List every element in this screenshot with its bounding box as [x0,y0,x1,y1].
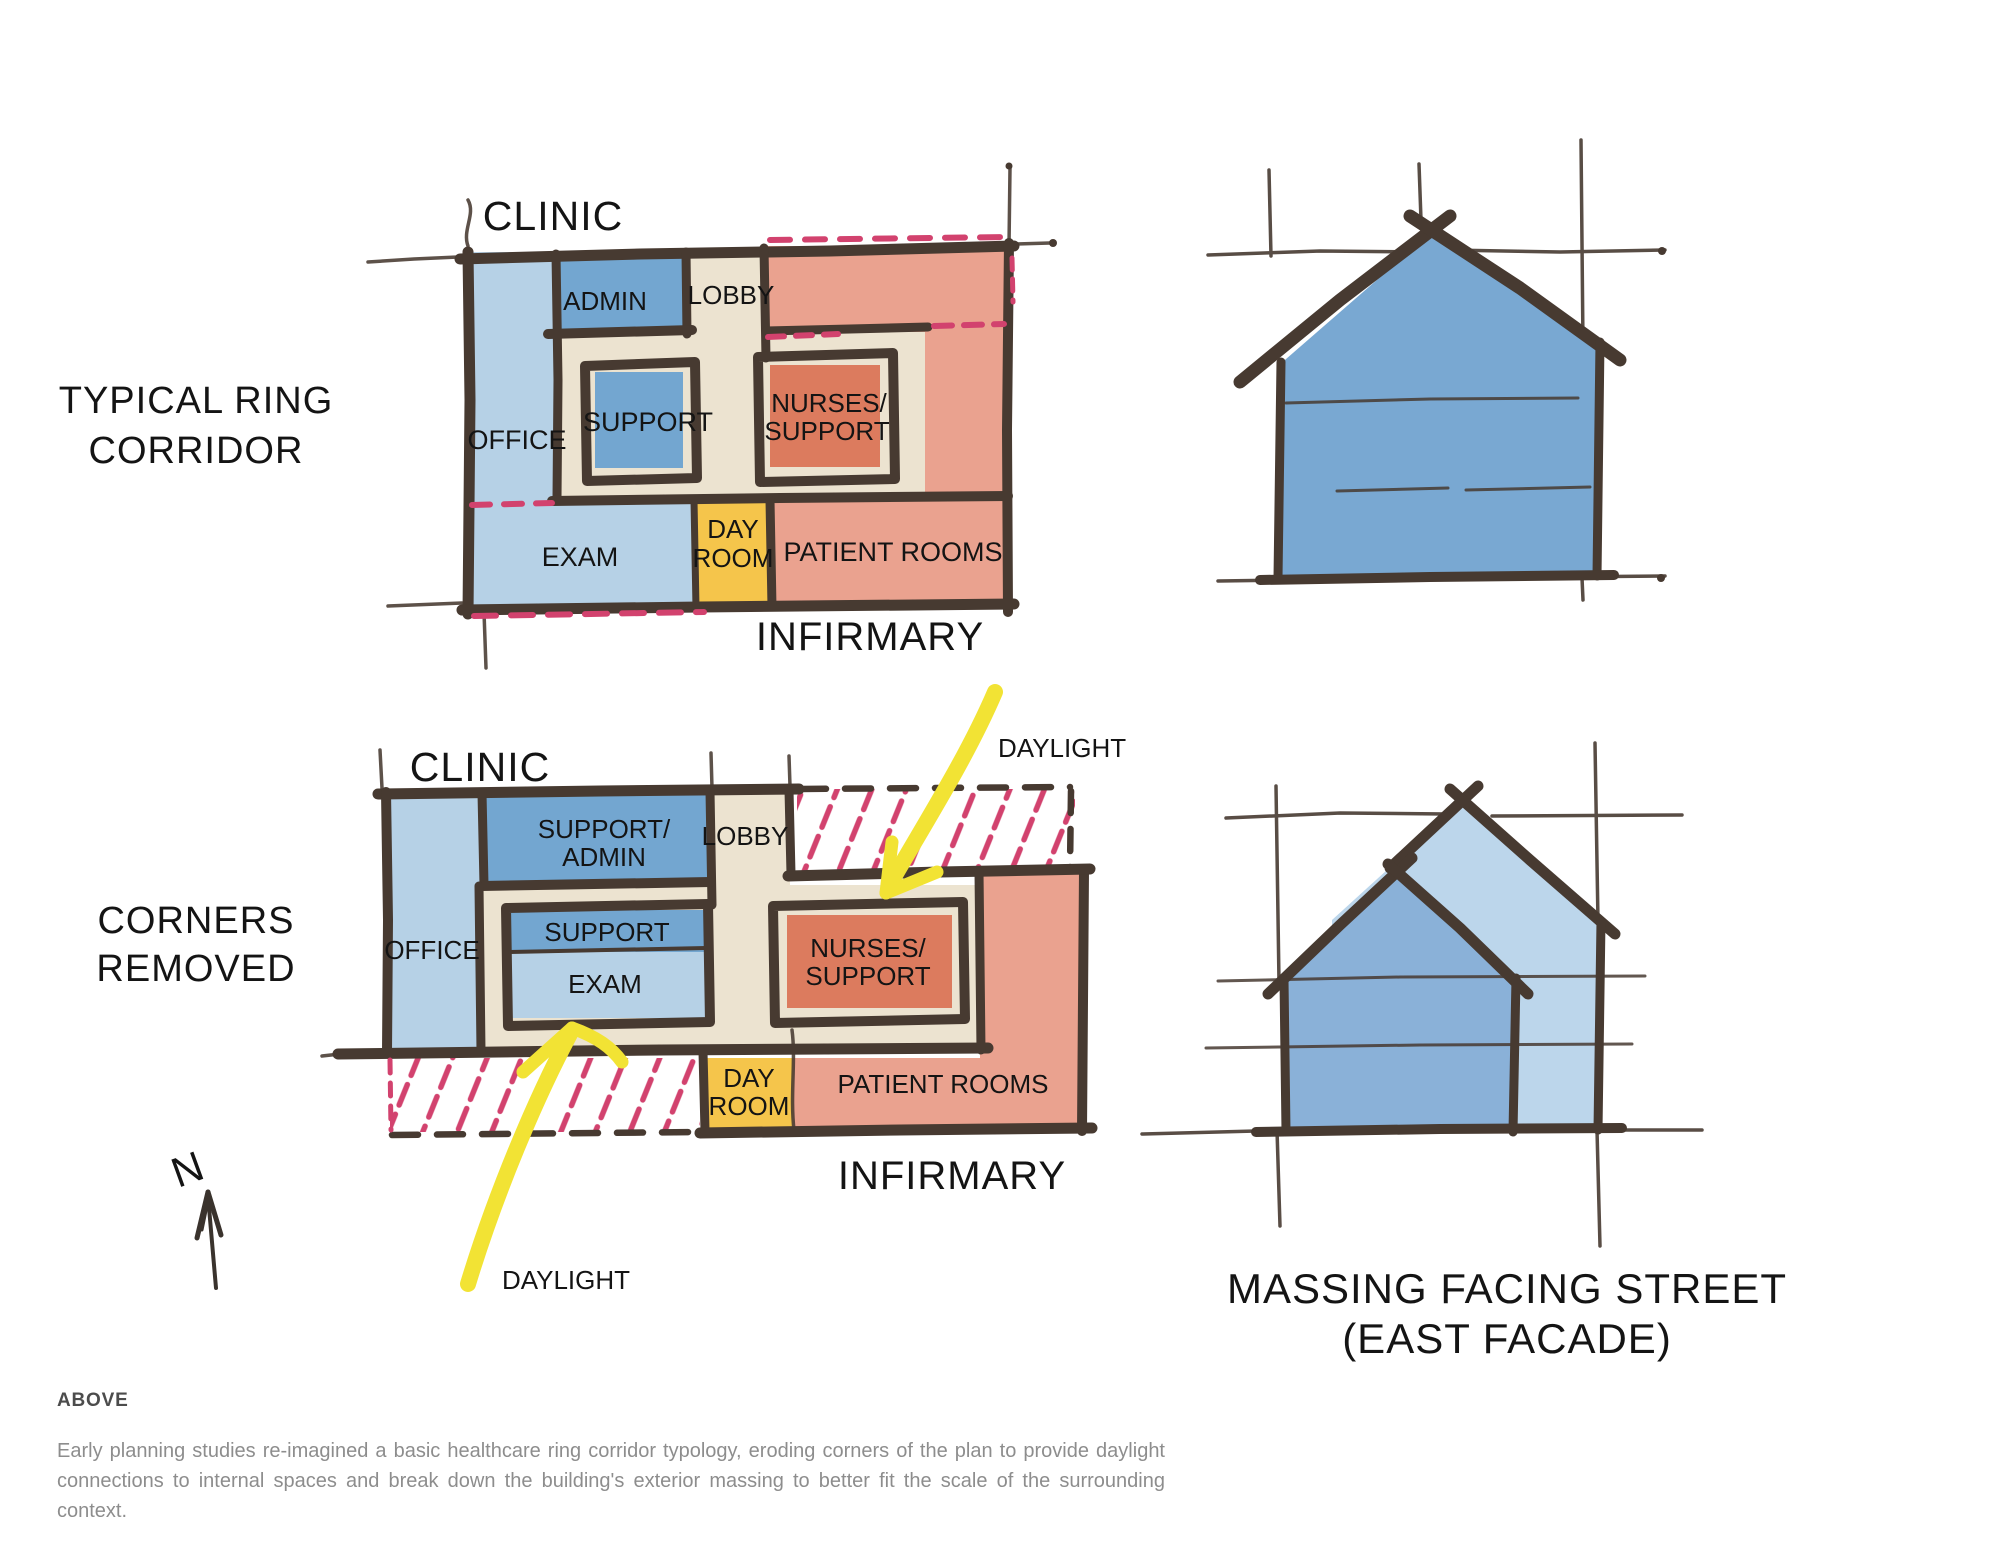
plan1-typical-ring-corridor: CLINIC INFIRMARY ADMIN LOBBY OFFICE SUPP… [368,163,1057,669]
plan1-clinic-label: CLINIC [483,193,623,239]
caption-block: ABOVE Early planning studies re-imagined… [57,1390,1165,1526]
plan2-section-title-line1: CORNERS [97,900,294,942]
plan2-room-office: OFFICE [384,935,479,965]
plan1-section-title-line2: CORRIDOR [89,430,304,472]
plan1-room-support: SUPPORT [583,407,713,437]
north-arrow-label: N [165,1142,210,1197]
plan2-room-support-admin-line2: ADMIN [562,842,646,872]
massing1-volume [1278,232,1600,576]
plan2-room-room: ROOM [709,1091,790,1121]
plan1-room-lobby: LOBBY [688,280,775,310]
massing-sketch-bottom [1142,743,1702,1246]
plan2-clinic-label: CLINIC [410,744,550,790]
caption-body: Early planning studies re-imagined a bas… [57,1436,1165,1526]
plan2-room-support: SUPPORT [544,917,669,947]
plan2-room-support-admin-line1: SUPPORT/ [538,814,671,844]
plan1-room-office: OFFICE [468,425,567,455]
plan2-daylight-bottom-label: DAYLIGHT [502,1265,630,1295]
plan1-section-title-line1: TYPICAL RING [59,380,334,422]
north-arrow: N [165,1142,221,1288]
massing-title-line2: (EAST FACADE) [1342,1315,1672,1362]
plan1-room-admin: ADMIN [563,286,647,316]
plan2-room-day: DAY [723,1063,775,1093]
plan1-room-nurses-line1: NURSES/ [771,388,887,418]
plan2-pink-edge [390,1060,391,1130]
massing-sketch-top [1208,140,1666,600]
plan2-room-patient: PATIENT ROOMS [838,1069,1049,1099]
sketch-canvas: CLINIC INFIRMARY ADMIN LOBBY OFFICE SUPP… [0,0,2000,1545]
plan1-room-patient: PATIENT ROOMS [783,537,1002,567]
plan2-room-nurses-line2: SUPPORT [805,961,930,991]
plan2-section-title-line2: REMOVED [96,948,295,990]
plan2-infirmary-label: INFIRMARY [838,1154,1066,1198]
plan1-infirmary-label: INFIRMARY [756,615,984,659]
massing-title-line1: MASSING FACING STREET [1227,1265,1787,1312]
plan2-corners-removed: CLINIC INFIRMARY SUPPORT/ ADMIN LOBBY OF… [322,692,1126,1295]
plan2-room-nurses-line1: NURSES/ [810,933,926,963]
plan2-daylight-top-label: DAYLIGHT [998,733,1126,763]
plan2-room-exam: EXAM [568,969,642,999]
portfolio-page: CLINIC INFIRMARY ADMIN LOBBY OFFICE SUPP… [0,0,2000,1545]
plan1-room-nurses-line2: SUPPORT [764,416,889,446]
plan1-room-day: DAY [707,514,759,544]
plan1-room-exam: EXAM [542,542,619,572]
plan2-room-lobby: LOBBY [702,821,789,851]
plan1-room-room: ROOM [693,543,774,573]
caption-heading: ABOVE [57,1390,1165,1412]
